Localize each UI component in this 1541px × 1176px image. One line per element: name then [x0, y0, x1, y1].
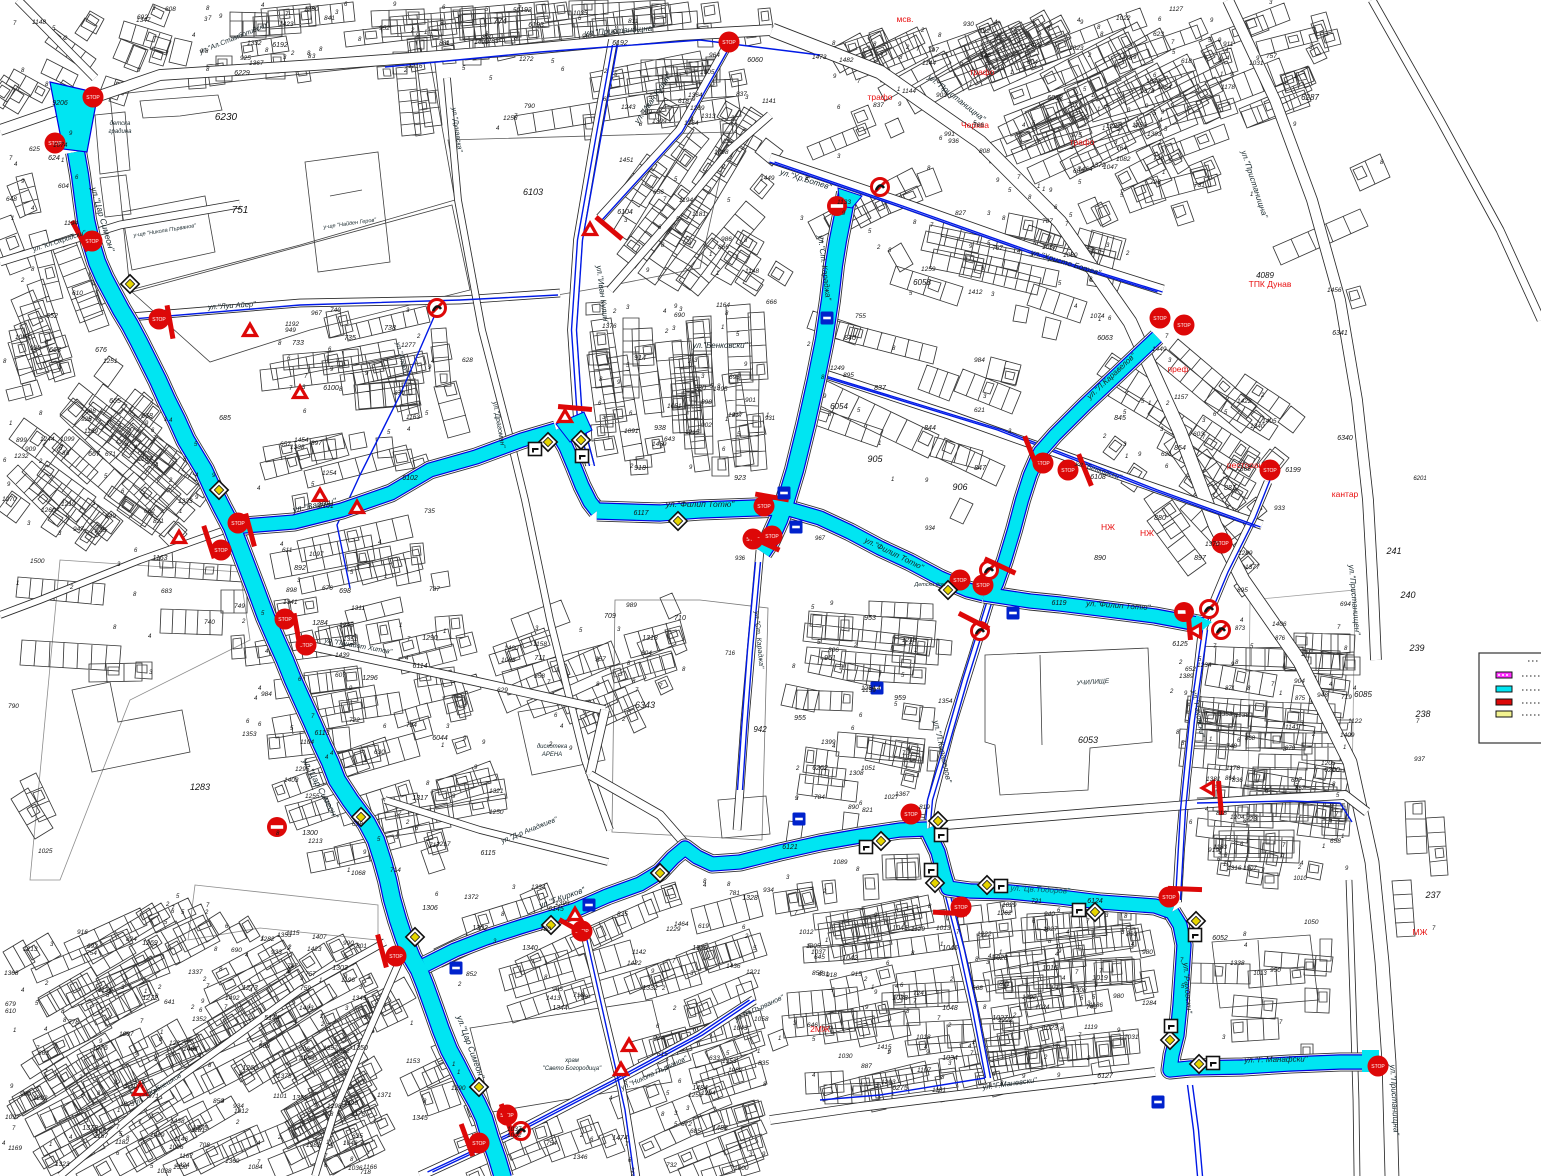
svg-text:905: 905	[867, 454, 883, 464]
svg-text:1: 1	[154, 1057, 157, 1063]
svg-text:1344: 1344	[552, 1005, 568, 1012]
svg-text:865: 865	[1240, 466, 1251, 473]
svg-text:2: 2	[905, 45, 910, 51]
svg-text:1194: 1194	[679, 197, 693, 204]
svg-text:1399: 1399	[555, 900, 570, 907]
svg-text:6340: 6340	[1337, 435, 1353, 442]
svg-text:1153: 1153	[406, 1058, 420, 1065]
svg-text:1051: 1051	[667, 403, 682, 410]
svg-text:618: 618	[678, 98, 689, 105]
svg-text:1023: 1023	[1069, 45, 1084, 52]
svg-text:887: 887	[861, 1063, 872, 1070]
svg-text:845: 845	[1114, 415, 1126, 422]
svg-text:766: 766	[973, 122, 984, 129]
svg-text:1012: 1012	[234, 1108, 249, 1115]
svg-text:1436: 1436	[726, 963, 741, 970]
svg-text:1167: 1167	[138, 456, 152, 463]
svg-text:716: 716	[725, 651, 736, 657]
svg-text:827: 827	[955, 210, 966, 217]
svg-text:2: 2	[876, 245, 881, 251]
svg-text:1355: 1355	[292, 1095, 308, 1102]
svg-text:2: 2	[621, 717, 626, 723]
svg-text:967: 967	[311, 310, 322, 317]
svg-text:1: 1	[1322, 844, 1325, 850]
svg-text:2: 2	[290, 51, 295, 57]
svg-text:1030: 1030	[838, 1053, 853, 1060]
svg-text:787: 787	[429, 586, 440, 593]
svg-text:625: 625	[29, 146, 40, 153]
svg-text:1492: 1492	[225, 995, 240, 1002]
svg-text:903: 903	[936, 92, 947, 99]
svg-text:811: 811	[628, 18, 639, 25]
svg-text:1378: 1378	[1140, 88, 1155, 95]
svg-text:1: 1	[452, 1062, 455, 1068]
svg-text:6192: 6192	[272, 42, 288, 49]
svg-text:1: 1	[319, 978, 322, 984]
svg-text:911: 911	[1223, 41, 1234, 48]
svg-text:239: 239	[1408, 643, 1424, 653]
svg-text:787: 787	[287, 963, 298, 970]
svg-text:STOP: STOP	[85, 239, 99, 245]
svg-text:790: 790	[524, 103, 535, 110]
svg-text:918: 918	[826, 972, 837, 979]
svg-text:2: 2	[78, 1075, 83, 1081]
svg-text:1: 1	[460, 696, 463, 702]
svg-text:892: 892	[294, 565, 306, 572]
svg-text:1459: 1459	[652, 441, 667, 448]
svg-text:2: 2	[687, 359, 692, 365]
svg-text:1037: 1037	[507, 1126, 522, 1133]
svg-text:930: 930	[694, 385, 706, 392]
svg-text:2: 2	[548, 742, 553, 748]
svg-text:1255: 1255	[305, 793, 320, 800]
svg-text:844: 844	[924, 425, 936, 432]
svg-text:STOP: STOP	[278, 617, 292, 623]
svg-text:1: 1	[160, 1030, 163, 1036]
svg-text:храм: храм	[564, 1058, 579, 1064]
svg-text:980: 980	[1113, 993, 1124, 1000]
svg-text:1: 1	[1125, 454, 1128, 460]
svg-text:1101: 1101	[273, 1093, 287, 1100]
svg-text:1217: 1217	[728, 412, 743, 419]
svg-text:2: 2	[410, 28, 415, 34]
svg-text:685: 685	[690, 1128, 701, 1135]
svg-text:980: 980	[1142, 949, 1153, 956]
svg-text:1186: 1186	[1089, 1002, 1103, 1009]
svg-text:610: 610	[72, 290, 83, 297]
svg-text:6100: 6100	[323, 385, 339, 392]
svg-text:1221: 1221	[746, 969, 761, 976]
svg-text:666: 666	[766, 299, 777, 306]
svg-text:1043: 1043	[733, 1025, 748, 1032]
svg-text:2: 2	[664, 329, 669, 335]
svg-text:621: 621	[1161, 451, 1172, 458]
svg-text:1: 1	[1280, 853, 1283, 859]
svg-text:818: 818	[1216, 810, 1227, 817]
svg-text:6121: 6121	[782, 844, 798, 851]
svg-text:1495: 1495	[713, 386, 728, 393]
svg-text:923: 923	[734, 475, 746, 482]
svg-text:1027: 1027	[1043, 926, 1058, 933]
svg-text:6193: 6193	[528, 22, 544, 29]
svg-text:1198: 1198	[344, 1100, 358, 1107]
svg-text:986: 986	[721, 236, 732, 243]
svg-text:1276: 1276	[92, 1045, 108, 1052]
svg-text:870: 870	[1285, 746, 1296, 752]
svg-text:2: 2	[168, 478, 173, 484]
svg-text:1: 1	[144, 989, 147, 995]
svg-text:757: 757	[1266, 53, 1277, 60]
svg-text:722: 722	[349, 717, 360, 724]
svg-text:841: 841	[324, 15, 335, 22]
svg-text:821: 821	[862, 807, 873, 814]
svg-text:1: 1	[106, 421, 109, 427]
svg-text:1318: 1318	[642, 635, 658, 642]
svg-text:2: 2	[258, 1041, 263, 1047]
svg-text:967: 967	[815, 536, 826, 542]
svg-text:1007: 1007	[119, 1031, 134, 1038]
svg-text:835: 835	[617, 911, 628, 918]
svg-text:1167: 1167	[94, 1133, 108, 1140]
svg-text:837: 837	[874, 385, 887, 392]
svg-text:1: 1	[11, 216, 14, 222]
svg-text:615: 615	[657, 1051, 668, 1058]
svg-text:868: 868	[1245, 736, 1256, 742]
svg-text:1422: 1422	[627, 960, 642, 967]
svg-text:1192: 1192	[285, 321, 299, 328]
svg-text:1403: 1403	[284, 777, 299, 784]
svg-text:2: 2	[1169, 689, 1174, 695]
svg-text:1294: 1294	[701, 1090, 716, 1097]
svg-text:2: 2	[672, 1006, 677, 1012]
svg-text:6054: 6054	[830, 402, 848, 411]
svg-text:668: 668	[972, 985, 983, 992]
svg-text:1: 1	[1097, 107, 1100, 113]
svg-text:671: 671	[105, 451, 116, 458]
svg-text:1438: 1438	[170, 1118, 185, 1125]
svg-text:STOP: STOP	[904, 812, 918, 818]
svg-text:1351: 1351	[343, 636, 358, 643]
svg-text:1309: 1309	[652, 118, 667, 125]
svg-text:934: 934	[925, 526, 936, 532]
svg-text:710: 710	[674, 615, 686, 622]
svg-text:646: 646	[807, 1022, 818, 1029]
svg-text:1018: 1018	[916, 1034, 931, 1041]
svg-text:959: 959	[894, 695, 906, 702]
svg-text:1222: 1222	[169, 1040, 184, 1047]
svg-text:847: 847	[974, 465, 987, 472]
svg-text:1167: 1167	[179, 1153, 193, 1160]
svg-text:2: 2	[822, 889, 827, 895]
svg-text:2: 2	[363, 1015, 368, 1021]
svg-text:1292: 1292	[1022, 994, 1037, 1001]
svg-text:1122: 1122	[1348, 718, 1362, 725]
svg-text:2: 2	[806, 342, 811, 348]
svg-text:1439: 1439	[335, 652, 350, 659]
svg-text:641: 641	[164, 999, 175, 1006]
svg-text:1: 1	[16, 581, 19, 587]
svg-text:1353: 1353	[1218, 711, 1233, 718]
svg-text:901: 901	[745, 397, 756, 404]
svg-text:918: 918	[634, 465, 646, 472]
svg-text:623: 623	[1153, 31, 1164, 38]
svg-text:740: 740	[330, 307, 341, 314]
svg-text:6058: 6058	[913, 278, 931, 287]
svg-text:1: 1	[1209, 737, 1212, 743]
svg-text:799: 799	[577, 994, 588, 1001]
svg-text:1: 1	[308, 1004, 311, 1010]
svg-text:1429: 1429	[150, 1132, 165, 1139]
svg-text:1330: 1330	[692, 945, 708, 952]
svg-text:1352: 1352	[192, 1016, 207, 1023]
svg-text:2: 2	[320, 1022, 325, 1028]
svg-text:6343: 6343	[635, 700, 655, 710]
svg-text:1353: 1353	[242, 731, 257, 738]
svg-text:1254: 1254	[322, 470, 337, 477]
svg-text:1: 1	[878, 441, 881, 447]
svg-text:608: 608	[165, 6, 176, 13]
svg-text:1: 1	[1091, 93, 1094, 99]
svg-text:1: 1	[766, 413, 769, 419]
svg-text:1: 1	[1102, 126, 1105, 132]
svg-text:1178: 1178	[1221, 84, 1235, 91]
svg-text:618: 618	[993, 65, 1004, 72]
svg-text:1: 1	[49, 1142, 52, 1148]
svg-text:238: 238	[1414, 709, 1430, 719]
svg-text:1: 1	[1301, 652, 1304, 658]
svg-text:1022: 1022	[977, 931, 992, 938]
svg-text:909: 909	[25, 446, 36, 453]
svg-text:720: 720	[540, 926, 551, 933]
svg-text:1222: 1222	[998, 1017, 1013, 1024]
svg-text:938: 938	[654, 425, 666, 432]
svg-text:2: 2	[165, 902, 170, 908]
svg-text:898: 898	[286, 587, 297, 594]
svg-text:738: 738	[384, 325, 396, 332]
svg-text:1251: 1251	[103, 358, 118, 365]
svg-text:STOP: STOP	[953, 578, 967, 584]
svg-text:1024: 1024	[1035, 1004, 1050, 1011]
svg-text:2: 2	[795, 766, 800, 772]
svg-text:2: 2	[664, 72, 669, 78]
svg-text:1280: 1280	[304, 6, 319, 13]
svg-text:1: 1	[1042, 187, 1045, 193]
svg-text:2: 2	[44, 981, 49, 987]
svg-text:934: 934	[763, 887, 774, 894]
svg-text:1000: 1000	[734, 1165, 749, 1172]
svg-text:990: 990	[343, 940, 354, 947]
svg-text:1303: 1303	[332, 965, 348, 972]
svg-text:1370: 1370	[1205, 541, 1220, 548]
svg-text:2: 2	[38, 459, 43, 465]
svg-text:873: 873	[1235, 626, 1246, 632]
svg-text:2: 2	[1087, 53, 1092, 59]
svg-text:1306: 1306	[422, 905, 438, 912]
svg-text:237: 237	[1424, 890, 1441, 900]
svg-text:1213: 1213	[23, 946, 38, 953]
svg-text:1354: 1354	[938, 698, 953, 705]
svg-text:6063: 6063	[1097, 335, 1113, 342]
svg-text:797: 797	[928, 47, 939, 54]
svg-text:1: 1	[1092, 1034, 1095, 1040]
svg-text:2: 2	[319, 1014, 324, 1020]
svg-text:668: 668	[141, 413, 153, 420]
svg-text:STOP: STOP	[152, 317, 166, 323]
svg-text:6104: 6104	[617, 209, 633, 216]
svg-text:1449: 1449	[1152, 346, 1167, 353]
svg-text:808: 808	[979, 148, 990, 155]
svg-text:1148: 1148	[745, 268, 759, 275]
svg-text:1451: 1451	[619, 157, 634, 164]
svg-text:1290: 1290	[451, 1085, 466, 1092]
svg-text:1422: 1422	[1237, 398, 1252, 405]
svg-text:1141: 1141	[1285, 724, 1299, 731]
svg-text:1: 1	[887, 1050, 890, 1056]
svg-text:840: 840	[844, 335, 856, 342]
svg-text:906: 906	[299, 1046, 310, 1053]
svg-text:2: 2	[1102, 434, 1107, 440]
svg-text:1: 1	[1250, 192, 1253, 198]
svg-text:731: 731	[1194, 182, 1205, 189]
svg-text:1: 1	[347, 868, 350, 874]
svg-text:624: 624	[48, 155, 60, 162]
svg-text:2: 2	[277, 1135, 282, 1141]
svg-text:1393: 1393	[1147, 131, 1162, 138]
svg-text:1: 1	[940, 942, 943, 948]
svg-text:1367: 1367	[249, 60, 264, 67]
svg-text:1163: 1163	[152, 555, 167, 562]
svg-text:1005: 1005	[700, 69, 715, 76]
svg-text:6114: 6114	[412, 663, 427, 670]
svg-text:6341: 6341	[1332, 330, 1348, 337]
svg-text:1: 1	[1343, 745, 1346, 751]
svg-text:1345: 1345	[352, 995, 367, 1002]
svg-text:652: 652	[1185, 666, 1196, 673]
svg-text:658: 658	[1330, 838, 1341, 845]
svg-text:991: 991	[944, 131, 955, 138]
svg-text:6230: 6230	[215, 112, 238, 123]
svg-text:790: 790	[8, 703, 19, 710]
svg-text:1266: 1266	[242, 1065, 258, 1072]
svg-text:778: 778	[68, 1019, 79, 1026]
svg-text:1323: 1323	[55, 1161, 70, 1168]
svg-text:1: 1	[825, 938, 828, 944]
svg-text:1340: 1340	[1250, 423, 1265, 430]
svg-text:1129: 1129	[911, 926, 925, 933]
svg-text:895: 895	[843, 372, 854, 379]
svg-text:6113: 6113	[314, 730, 329, 737]
svg-text:1: 1	[821, 238, 824, 244]
svg-text:898: 898	[701, 399, 712, 406]
svg-text:1048: 1048	[942, 1005, 958, 1012]
svg-text:1302: 1302	[472, 925, 488, 932]
svg-text:2: 2	[1293, 74, 1298, 80]
svg-text:1181: 1181	[692, 211, 706, 218]
svg-text:1264: 1264	[1157, 84, 1172, 91]
svg-text:690: 690	[674, 312, 685, 319]
svg-text:1080: 1080	[1063, 252, 1078, 259]
svg-text:1: 1	[384, 574, 387, 580]
svg-text:6229: 6229	[234, 70, 250, 77]
svg-text:1: 1	[897, 87, 900, 93]
svg-text:860: 860	[1126, 931, 1137, 938]
svg-text:1: 1	[1010, 70, 1013, 76]
svg-text:683: 683	[161, 588, 172, 595]
svg-text:1058: 1058	[754, 1016, 769, 1023]
svg-text:1050: 1050	[1304, 919, 1319, 926]
svg-text:градина: градина	[109, 129, 133, 135]
svg-text:1: 1	[738, 0, 741, 2]
svg-text:2: 2	[63, 36, 68, 42]
svg-text:1: 1	[1105, 102, 1108, 108]
svg-text:953: 953	[864, 615, 876, 622]
svg-text:1409: 1409	[1340, 732, 1355, 739]
svg-text:1215: 1215	[685, 429, 700, 436]
svg-text:1031: 1031	[1124, 1034, 1139, 1041]
svg-text:1: 1	[891, 477, 894, 483]
svg-text:6052: 6052	[1212, 935, 1228, 942]
svg-text:950: 950	[1270, 967, 1281, 974]
svg-text:1218: 1218	[902, 637, 917, 644]
svg-text:2: 2	[1043, 1055, 1048, 1061]
svg-text:1: 1	[1220, 72, 1223, 78]
svg-text:1216: 1216	[408, 63, 423, 70]
svg-text:942: 942	[753, 725, 767, 734]
svg-text:1: 1	[778, 1036, 781, 1042]
svg-text:930: 930	[963, 21, 974, 28]
svg-text:866: 866	[718, 244, 729, 251]
svg-text:1338: 1338	[1230, 960, 1245, 967]
svg-text:1019: 1019	[1092, 975, 1108, 982]
svg-text:1500: 1500	[30, 558, 45, 565]
svg-text:1036: 1036	[348, 1165, 363, 1172]
svg-text:1353: 1353	[277, 932, 292, 939]
svg-text:2: 2	[457, 982, 462, 988]
svg-text:1234: 1234	[1197, 662, 1212, 669]
svg-text:925: 925	[240, 55, 251, 62]
svg-text:2: 2	[630, 1172, 635, 1176]
svg-text:804: 804	[641, 650, 652, 657]
svg-text:821: 821	[153, 518, 164, 525]
svg-text:1381: 1381	[1206, 776, 1221, 783]
svg-text:635: 635	[352, 1133, 363, 1140]
svg-text:6117: 6117	[633, 510, 649, 517]
svg-text:1454: 1454	[294, 437, 309, 444]
svg-text:2: 2	[579, 1133, 584, 1139]
svg-text:9206: 9206	[52, 100, 68, 107]
svg-text:1107: 1107	[917, 1067, 931, 1074]
svg-text:1023: 1023	[1042, 1025, 1058, 1032]
svg-text:1158: 1158	[533, 641, 547, 648]
svg-text:1460: 1460	[504, 645, 519, 652]
svg-text:детска: детска	[110, 121, 131, 127]
svg-text:937: 937	[1414, 756, 1425, 763]
svg-text:1493: 1493	[299, 1005, 314, 1012]
svg-text:619: 619	[698, 923, 709, 930]
svg-text:1284: 1284	[1142, 1000, 1157, 1007]
svg-text:1025: 1025	[38, 848, 53, 855]
svg-text:2: 2	[1178, 660, 1183, 666]
svg-text:714: 714	[390, 867, 401, 874]
svg-text:735: 735	[344, 335, 356, 342]
svg-text:1282: 1282	[260, 936, 275, 943]
svg-text:2: 2	[190, 1005, 195, 1011]
svg-text:1006: 1006	[169, 1144, 184, 1151]
svg-text:1084: 1084	[248, 1164, 263, 1171]
svg-text:1328: 1328	[742, 895, 758, 902]
svg-text:4089: 4089	[1256, 271, 1274, 280]
svg-text:2: 2	[235, 1120, 240, 1126]
